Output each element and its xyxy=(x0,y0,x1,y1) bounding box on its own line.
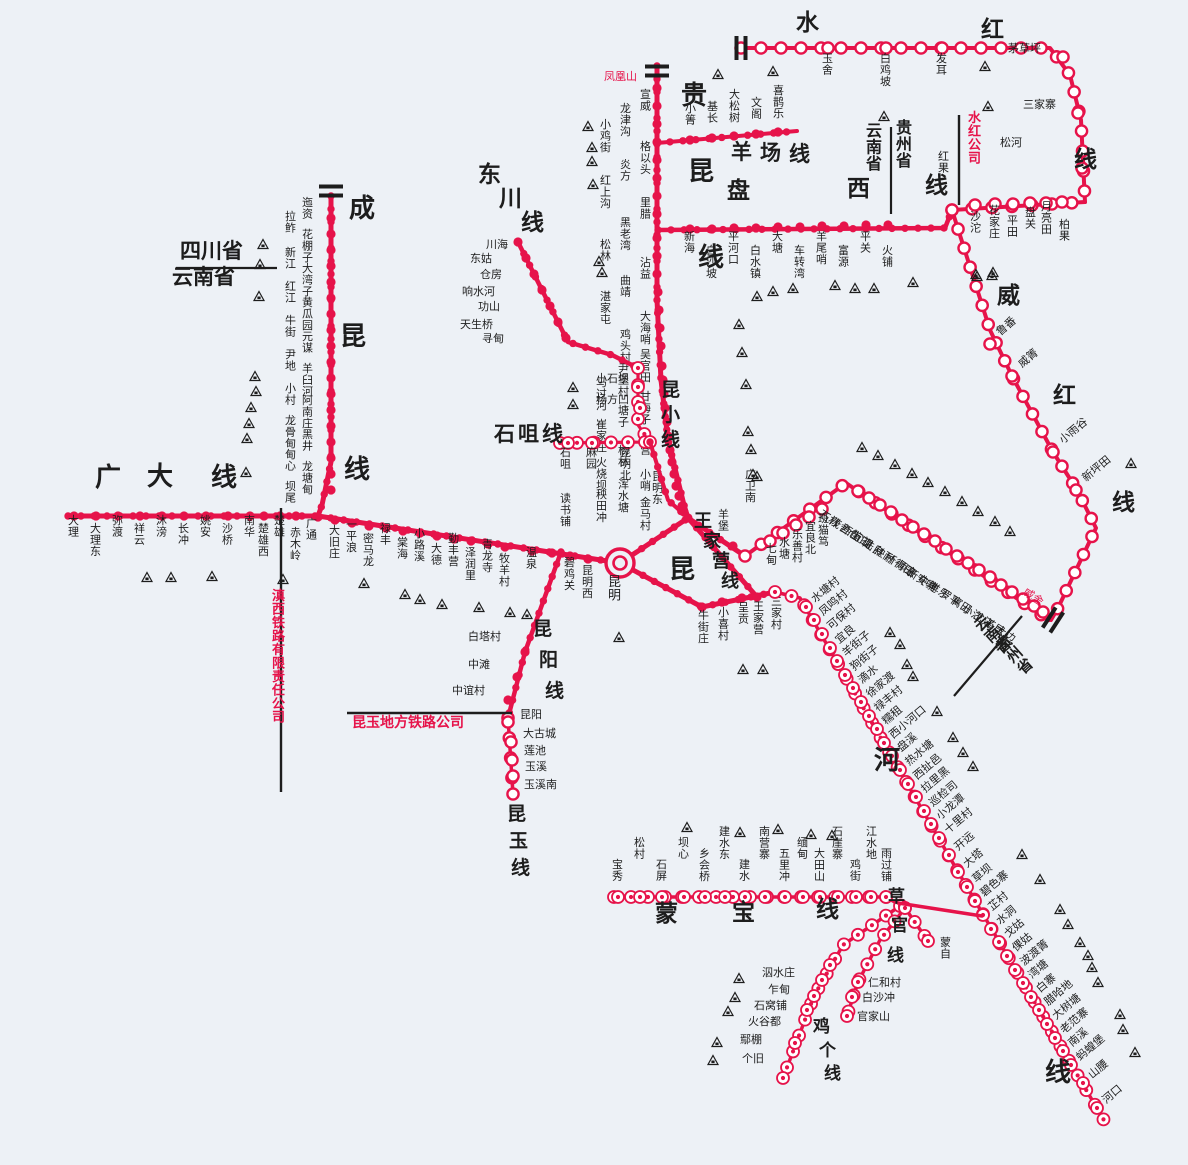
station-dot xyxy=(618,356,625,363)
station-dot xyxy=(553,561,560,568)
station-dot xyxy=(783,128,790,135)
line-name-char: 线 xyxy=(521,209,544,236)
station-dot xyxy=(326,293,335,302)
station-dot xyxy=(326,389,335,398)
station-ring-dot xyxy=(906,782,910,786)
station-平关: 平关 xyxy=(860,220,871,254)
station-ring xyxy=(977,300,988,311)
railway-map-page: 迤资拉鲊花棚子新江大湾子红江黄瓜园牛街元谋尹地羊臼河小村阿南庄龙骨甸黑井甸心龙塘… xyxy=(0,0,1188,1165)
station-label: 乐善村 xyxy=(792,528,803,564)
station-大田山: 大田山 xyxy=(814,846,826,903)
station-dot xyxy=(326,341,335,350)
station-label: 大塘 xyxy=(772,229,783,255)
station-ring-dot xyxy=(783,895,787,899)
station-dot xyxy=(744,583,751,590)
station-label: 响水河 xyxy=(462,285,495,298)
station-dot xyxy=(914,224,921,231)
station-ring-dot xyxy=(956,870,960,874)
station-dot xyxy=(503,695,512,704)
station-ring xyxy=(973,564,984,575)
station-label: 红江 xyxy=(285,280,296,305)
station-ring-dot xyxy=(997,940,1001,944)
station-dot xyxy=(651,578,658,585)
station-label: 牧羊村 xyxy=(499,551,510,588)
station-ring xyxy=(895,42,906,53)
station-dot xyxy=(291,511,300,520)
station-label: 大德 xyxy=(431,541,442,567)
line-name-shizui: 石咀线 xyxy=(493,422,563,446)
station-ring xyxy=(896,514,907,525)
station-ring-dot xyxy=(626,440,630,444)
station-dot xyxy=(652,251,661,260)
station-ring-dot xyxy=(1045,1022,1049,1026)
station-dot xyxy=(326,309,335,318)
station-dot xyxy=(326,405,335,414)
station-label: 龙津沟 xyxy=(620,102,631,138)
station-label: 松村 xyxy=(634,835,645,861)
station-dot xyxy=(318,503,325,510)
line-name-char: 线 xyxy=(824,1063,841,1084)
station-label: 大田山 xyxy=(814,846,825,883)
line-name-char: 石 xyxy=(493,422,515,446)
station-dot xyxy=(547,548,556,557)
station-label: 小村 xyxy=(285,382,296,407)
station-棠海: 棠海 xyxy=(397,526,408,560)
station-dot xyxy=(685,135,694,144)
station-label: 羊尾哨 xyxy=(816,229,827,266)
station-dot xyxy=(875,225,882,232)
station-dot xyxy=(654,305,663,314)
station-label: 平关 xyxy=(860,230,871,255)
station-label: 石咀 xyxy=(560,446,571,471)
station-ring-dot xyxy=(845,1014,849,1018)
station-label: 平田 xyxy=(1007,214,1018,239)
station-白沙冲: 白沙冲 xyxy=(846,990,895,1004)
station-ring-dot xyxy=(805,1008,809,1012)
station-ring xyxy=(1069,86,1080,97)
kunming-inner-ring xyxy=(614,557,627,570)
station-label: 雨过铺 xyxy=(881,847,892,883)
station-label: 蒙自 xyxy=(940,936,951,961)
station-dot xyxy=(326,261,335,270)
station-ring xyxy=(962,557,973,568)
station-label: 昆明北 xyxy=(620,446,631,482)
line-name-char: 场 xyxy=(760,141,781,165)
station-ring xyxy=(1077,495,1088,506)
station-ring-dot xyxy=(812,994,816,998)
station-ring xyxy=(983,319,994,330)
station-ring xyxy=(929,535,940,546)
station-仁和村: 仁和村 xyxy=(852,975,901,989)
station-ring-dot xyxy=(723,895,727,899)
station-ring-dot xyxy=(828,963,832,967)
station-dot xyxy=(662,488,669,495)
station-ring-dot xyxy=(1053,1036,1057,1040)
station-label: 昆明西 xyxy=(582,564,593,600)
station-大理: 大理 xyxy=(68,511,79,538)
station-ring xyxy=(507,788,518,799)
station-dot xyxy=(233,512,240,519)
station-ring xyxy=(1056,196,1067,207)
station-dot xyxy=(654,226,661,233)
station-label: 昆明 xyxy=(608,575,621,604)
station-ring-dot xyxy=(828,646,832,650)
station-label: 车转湾 xyxy=(794,243,805,280)
station-ring-dot xyxy=(929,822,933,826)
station-label: 火谷都 xyxy=(748,1015,781,1028)
station-ring xyxy=(1006,586,1017,597)
station-温泉: 温泉 xyxy=(526,546,537,571)
station-ring xyxy=(795,42,806,53)
station-label: 花棚子 xyxy=(302,228,313,264)
station-label: 平河口 xyxy=(728,230,739,266)
station-label: 泅水庄 xyxy=(762,965,795,979)
station-label: 棠海 xyxy=(397,536,408,561)
station-ring-dot xyxy=(636,385,640,389)
station-label: 甸心 xyxy=(285,448,296,473)
station-dot xyxy=(652,119,661,128)
station-dot xyxy=(103,512,110,519)
station-label: 玉溪南 xyxy=(524,778,557,791)
station-label: 四川省 xyxy=(180,239,243,263)
line-name-char: 广 xyxy=(95,463,121,493)
station-label: 羊堡 xyxy=(718,507,729,533)
station-dot xyxy=(326,245,335,254)
station-ring xyxy=(852,485,863,496)
station-青龙寺: 青龙寺 xyxy=(482,538,493,574)
station-ring-dot xyxy=(859,700,863,704)
station-ring-dot xyxy=(843,673,847,677)
station-label: 小喜村 xyxy=(718,606,729,642)
station-dot xyxy=(557,548,564,555)
station-label: 建水东 xyxy=(719,824,730,861)
station-ring xyxy=(1070,484,1081,495)
line-name-char: 玉 xyxy=(509,830,528,852)
station-dot xyxy=(326,357,335,366)
line-name-char: 昆 xyxy=(661,379,680,401)
station-label: 沙桥 xyxy=(222,522,233,547)
station-dot xyxy=(658,476,665,483)
station-鸡街: 鸡街 xyxy=(850,857,862,903)
station-七甸: 七甸 xyxy=(764,535,777,566)
station-label: 湛家屯 xyxy=(600,290,611,326)
station-label: 水塘 xyxy=(779,536,790,561)
station-ring xyxy=(915,42,926,53)
station-ring xyxy=(1079,185,1090,196)
line-name-char: 线 xyxy=(1045,1058,1071,1088)
station-label: 南营寨 xyxy=(759,825,770,861)
station-ring xyxy=(1086,531,1097,542)
station-ring xyxy=(835,42,846,53)
station-dot xyxy=(652,209,661,218)
station-label: 南华 xyxy=(244,514,255,539)
station-ring-dot xyxy=(1005,954,1009,958)
station-ring-dot xyxy=(781,1076,785,1080)
station-label: 牛街 xyxy=(285,313,296,339)
line-name-char: 鸡 xyxy=(812,1016,830,1037)
station-ring xyxy=(984,338,995,349)
station-石屏: 石屏 xyxy=(656,858,668,903)
station-dot xyxy=(135,511,144,520)
station-dot xyxy=(667,226,674,233)
station-label: 水红公司 xyxy=(968,110,982,167)
line-name-char: 线 xyxy=(1112,489,1135,516)
station-dot xyxy=(326,325,335,334)
station-ring-dot xyxy=(703,895,707,899)
station-label: 元谋 xyxy=(302,330,313,355)
station-label: 七甸 xyxy=(766,542,777,567)
line-name-yangchang: 羊场线 xyxy=(731,140,810,166)
station-label: 一平浪 xyxy=(346,518,357,554)
station-dot xyxy=(548,573,555,580)
station-label: 凤凰山 xyxy=(604,70,637,83)
station-ring xyxy=(940,543,951,554)
line-name-char: 王 xyxy=(694,511,712,532)
station-dot xyxy=(535,609,542,616)
station-label: 花家庄 xyxy=(989,204,1000,240)
station-平河口: 平河口 xyxy=(728,223,739,266)
station-ring xyxy=(1047,446,1058,457)
station-dot xyxy=(519,659,526,666)
station-ring-dot xyxy=(989,927,993,931)
station-ring-dot xyxy=(743,895,747,899)
station-label: 青龙寺 xyxy=(482,538,493,574)
station-label: 江水地 xyxy=(866,825,877,861)
station-乐善村: 乐善村 xyxy=(790,519,803,564)
station-label: 发耳 xyxy=(936,51,947,77)
station-ring-dot xyxy=(566,441,570,445)
station-水塘: 水塘 xyxy=(777,527,790,560)
station-ring-dot xyxy=(804,605,808,609)
station-dot xyxy=(327,270,334,277)
line-name-char: 营 xyxy=(712,550,730,572)
station-ring xyxy=(1056,461,1067,472)
station-ring-dot xyxy=(803,1018,807,1022)
station-label: 天生桥 xyxy=(460,317,493,331)
line-name-char: 小 xyxy=(661,404,680,426)
station-label: 小鸡街 xyxy=(600,118,611,154)
station-ring-dot xyxy=(856,980,860,984)
station-label: 功山 xyxy=(478,300,500,313)
station-dot xyxy=(839,221,848,230)
station-dot xyxy=(784,225,791,232)
station-dot xyxy=(652,269,661,278)
station-dot xyxy=(940,224,947,231)
station-dot xyxy=(751,129,760,138)
station-label: 三家寨 xyxy=(1023,97,1056,111)
station-label: 姚安 xyxy=(200,513,211,539)
station-dot xyxy=(583,554,592,563)
station-ring xyxy=(874,499,885,510)
station-dot xyxy=(653,166,660,173)
line-name-char: 线 xyxy=(887,945,904,966)
station-dot xyxy=(653,296,660,303)
station-姚安: 姚安 xyxy=(200,511,211,538)
station-label: 仁和村 xyxy=(868,975,901,989)
station-ring-dot xyxy=(609,440,613,444)
station-dot xyxy=(652,233,661,242)
station-label: 黑老湾 xyxy=(620,216,631,252)
line-name-char: 威 xyxy=(997,282,1020,309)
station-ring-dot xyxy=(616,895,620,899)
station-label: 松林 xyxy=(600,237,611,263)
line-name-char: 线 xyxy=(698,243,724,273)
station-花家庄: 花家庄 xyxy=(989,198,1001,240)
station-ring xyxy=(951,550,962,561)
line-name-char: 川 xyxy=(499,186,522,212)
line-name-char: 线 xyxy=(211,463,237,493)
station-ring-dot xyxy=(793,1041,797,1045)
line-name-char: 线 xyxy=(511,856,530,879)
station-dot xyxy=(646,438,653,445)
station-dot xyxy=(667,457,676,466)
station-dot xyxy=(655,323,664,332)
line-name-char: 官 xyxy=(891,915,908,936)
station-label: 宣威 xyxy=(640,87,651,113)
station-ring xyxy=(952,223,963,234)
station-label: 泽润里 xyxy=(465,546,476,582)
station-ring xyxy=(907,521,918,532)
station-label: 楚雄 xyxy=(274,513,285,539)
station-dot xyxy=(326,277,335,286)
station-dot xyxy=(327,205,334,212)
station-ring-dot xyxy=(763,895,767,899)
station-ring xyxy=(1072,107,1083,118)
station-ring xyxy=(1078,549,1089,560)
station-label: 月亮田 xyxy=(1041,200,1052,236)
line-name-char: 东 xyxy=(478,161,501,188)
station-dot xyxy=(223,511,232,520)
station-ring xyxy=(502,716,513,727)
station-dot xyxy=(901,225,908,232)
station-dot xyxy=(326,213,335,222)
station-ring-dot xyxy=(812,618,816,622)
station-dot xyxy=(685,596,692,603)
station-label: 白塔村 xyxy=(468,629,501,643)
station-label: 曲靖 xyxy=(620,274,631,299)
station-label: 密马龙 xyxy=(363,531,374,568)
station-label: 龙塘甸 xyxy=(302,460,313,496)
station-dot xyxy=(513,237,522,246)
station-ring xyxy=(958,243,969,254)
province-label: 贵州省 xyxy=(895,118,912,170)
station-dot xyxy=(91,511,100,520)
station-宝秀: 宝秀 xyxy=(612,857,624,903)
station-ring-dot xyxy=(850,995,854,999)
station-label: 沾益 xyxy=(640,255,651,281)
station-ring-dot xyxy=(660,895,664,899)
station-大塘: 大塘 xyxy=(772,222,783,254)
station-ring-dot xyxy=(682,895,686,899)
station-ring xyxy=(820,492,831,503)
station-label: 宝秀 xyxy=(612,857,623,883)
station-ring-dot xyxy=(973,899,977,903)
station-牛街庄: 牛街庄 xyxy=(697,602,709,645)
station-ring-dot xyxy=(922,809,926,813)
station-label: 柏果 xyxy=(1059,217,1070,243)
station-dot xyxy=(653,218,660,225)
station-label: 长冲 xyxy=(178,522,189,547)
station-label: 里腊 xyxy=(640,196,651,221)
station-ring-dot xyxy=(1076,1073,1080,1077)
station-大德: 大德 xyxy=(431,531,442,566)
station-ring-dot xyxy=(926,939,930,943)
station-ring-dot xyxy=(1101,1117,1105,1121)
station-弥渡: 弥渡 xyxy=(112,511,123,538)
station-ring-dot xyxy=(965,885,969,889)
line-name-guangda: 广大线 xyxy=(95,462,237,493)
station-dot xyxy=(657,361,666,370)
station-label: 阿南庄 xyxy=(302,394,313,430)
line-name-char: 宝 xyxy=(732,899,755,926)
station-ring xyxy=(1063,67,1074,78)
station-label: 建水 xyxy=(739,857,750,883)
station-dot xyxy=(561,333,570,342)
station-沐滂: 沐滂 xyxy=(156,511,167,538)
station-dot xyxy=(677,508,684,515)
station-ring-dot xyxy=(1021,981,1025,985)
station-ring-dot xyxy=(789,594,793,598)
station-dot xyxy=(653,287,662,296)
station-label: 楚雄西 xyxy=(258,521,269,558)
station-dot xyxy=(883,220,892,229)
station-ring xyxy=(1057,51,1068,62)
station-label: 乡会桥 xyxy=(699,847,710,883)
station-ring-dot xyxy=(1013,968,1017,972)
station-ring-dot xyxy=(636,417,640,421)
station-label: 坝心 xyxy=(678,835,689,861)
line-name-char: 个 xyxy=(818,1040,837,1061)
station-label: 盘关 xyxy=(1025,205,1036,231)
station-label: 喜鹊乐 xyxy=(773,84,784,120)
station-dot xyxy=(773,127,782,136)
station-label: 羊臼河 xyxy=(302,361,313,398)
station-dot xyxy=(674,491,683,500)
station-label: 黄瓜园 xyxy=(302,295,313,332)
station-label: 仓房 xyxy=(480,267,502,281)
station-祥云: 祥云 xyxy=(134,511,145,546)
station-label: 金马村 xyxy=(640,495,651,532)
station-label: 鸡街 xyxy=(850,857,861,883)
line-name-char: 线 xyxy=(1074,146,1097,173)
station-label: 贵州省 xyxy=(895,118,912,170)
station-dot xyxy=(649,538,656,545)
station-柏果: 柏果 xyxy=(1056,196,1070,242)
station-ring-dot xyxy=(835,659,839,663)
station-dot xyxy=(326,485,335,494)
station-label: 云南省 xyxy=(865,121,882,173)
station-ring xyxy=(965,262,976,273)
station-dot xyxy=(540,597,547,604)
station-label: 石崖寨 xyxy=(832,825,843,861)
station-label: 茅草坪 xyxy=(1008,42,1041,55)
station-label: 牛街庄 xyxy=(698,608,709,645)
station-dot xyxy=(569,340,576,347)
station-ring xyxy=(955,42,966,53)
station-楚雄: 楚雄 xyxy=(274,511,285,538)
station-长冲: 长冲 xyxy=(178,511,189,546)
station-label: 赤木岭 xyxy=(290,526,301,562)
station-ring xyxy=(1086,513,1097,524)
station-label: 川海 xyxy=(486,237,508,251)
station-label: 大松树 xyxy=(729,87,740,124)
station-label: 温泉 xyxy=(526,546,537,571)
station-label: 王家营 xyxy=(753,600,764,636)
station-南华: 南华 xyxy=(244,511,255,538)
station-ring-dot xyxy=(947,853,951,857)
station-ring xyxy=(739,550,750,561)
station-ring-dot xyxy=(869,895,873,899)
